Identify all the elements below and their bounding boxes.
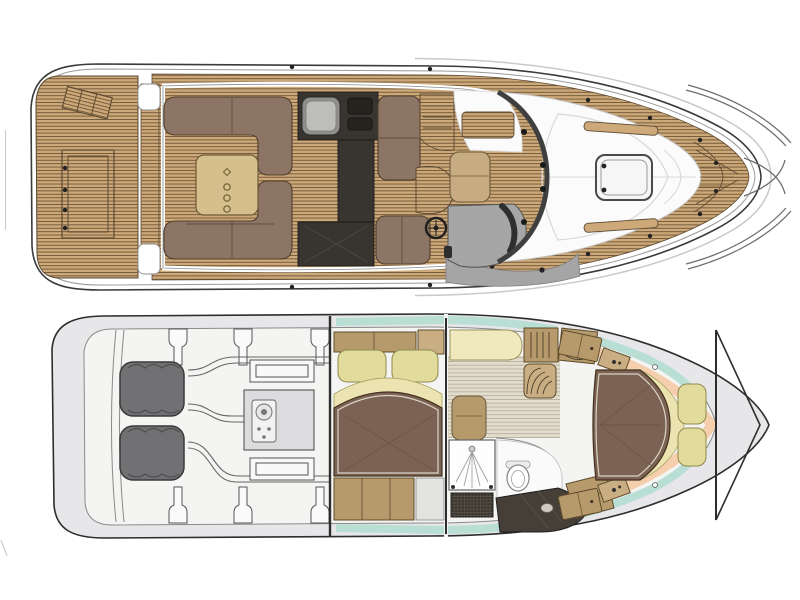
shower-stall <box>449 440 495 490</box>
vberth-pillow-bottom <box>678 428 706 466</box>
shower-grate <box>451 493 493 517</box>
engine-starboard <box>120 426 184 480</box>
companionway-stairs-lower <box>524 364 556 398</box>
deck-hatch <box>596 155 652 200</box>
louver-locker-a <box>524 328 558 362</box>
toilet <box>506 461 530 491</box>
engine-port <box>120 362 184 416</box>
corridor-settee <box>450 330 522 360</box>
side-seat-aft <box>376 216 430 264</box>
cockpit-table <box>196 155 258 215</box>
swim-platform <box>36 76 160 278</box>
transom-gate-top <box>138 84 160 110</box>
corner-artifact <box>1 540 7 556</box>
main-deck-view <box>6 59 792 296</box>
galley-grill <box>348 98 372 114</box>
generator-console <box>244 390 314 450</box>
mid-cabin-unit-bottom-right <box>416 478 444 520</box>
mid-cabin-locker-top <box>334 332 416 352</box>
mid-berth <box>334 392 442 476</box>
throttle-lever <box>444 246 452 258</box>
floorplan-canvas <box>0 0 800 600</box>
corridor-seat <box>452 396 486 440</box>
transom-step-strip <box>141 84 159 270</box>
mid-cabin-locker-bottom <box>334 478 414 520</box>
helm-seat <box>450 152 490 202</box>
transom-gate-bottom <box>138 244 160 274</box>
lower-deck-view <box>1 314 769 556</box>
floorplan-page <box>0 0 800 600</box>
vberth-pillow-top <box>678 384 706 424</box>
mid-pillow-right <box>392 350 438 382</box>
mid-pillow-left <box>338 350 386 382</box>
steering-wheel <box>426 218 446 238</box>
